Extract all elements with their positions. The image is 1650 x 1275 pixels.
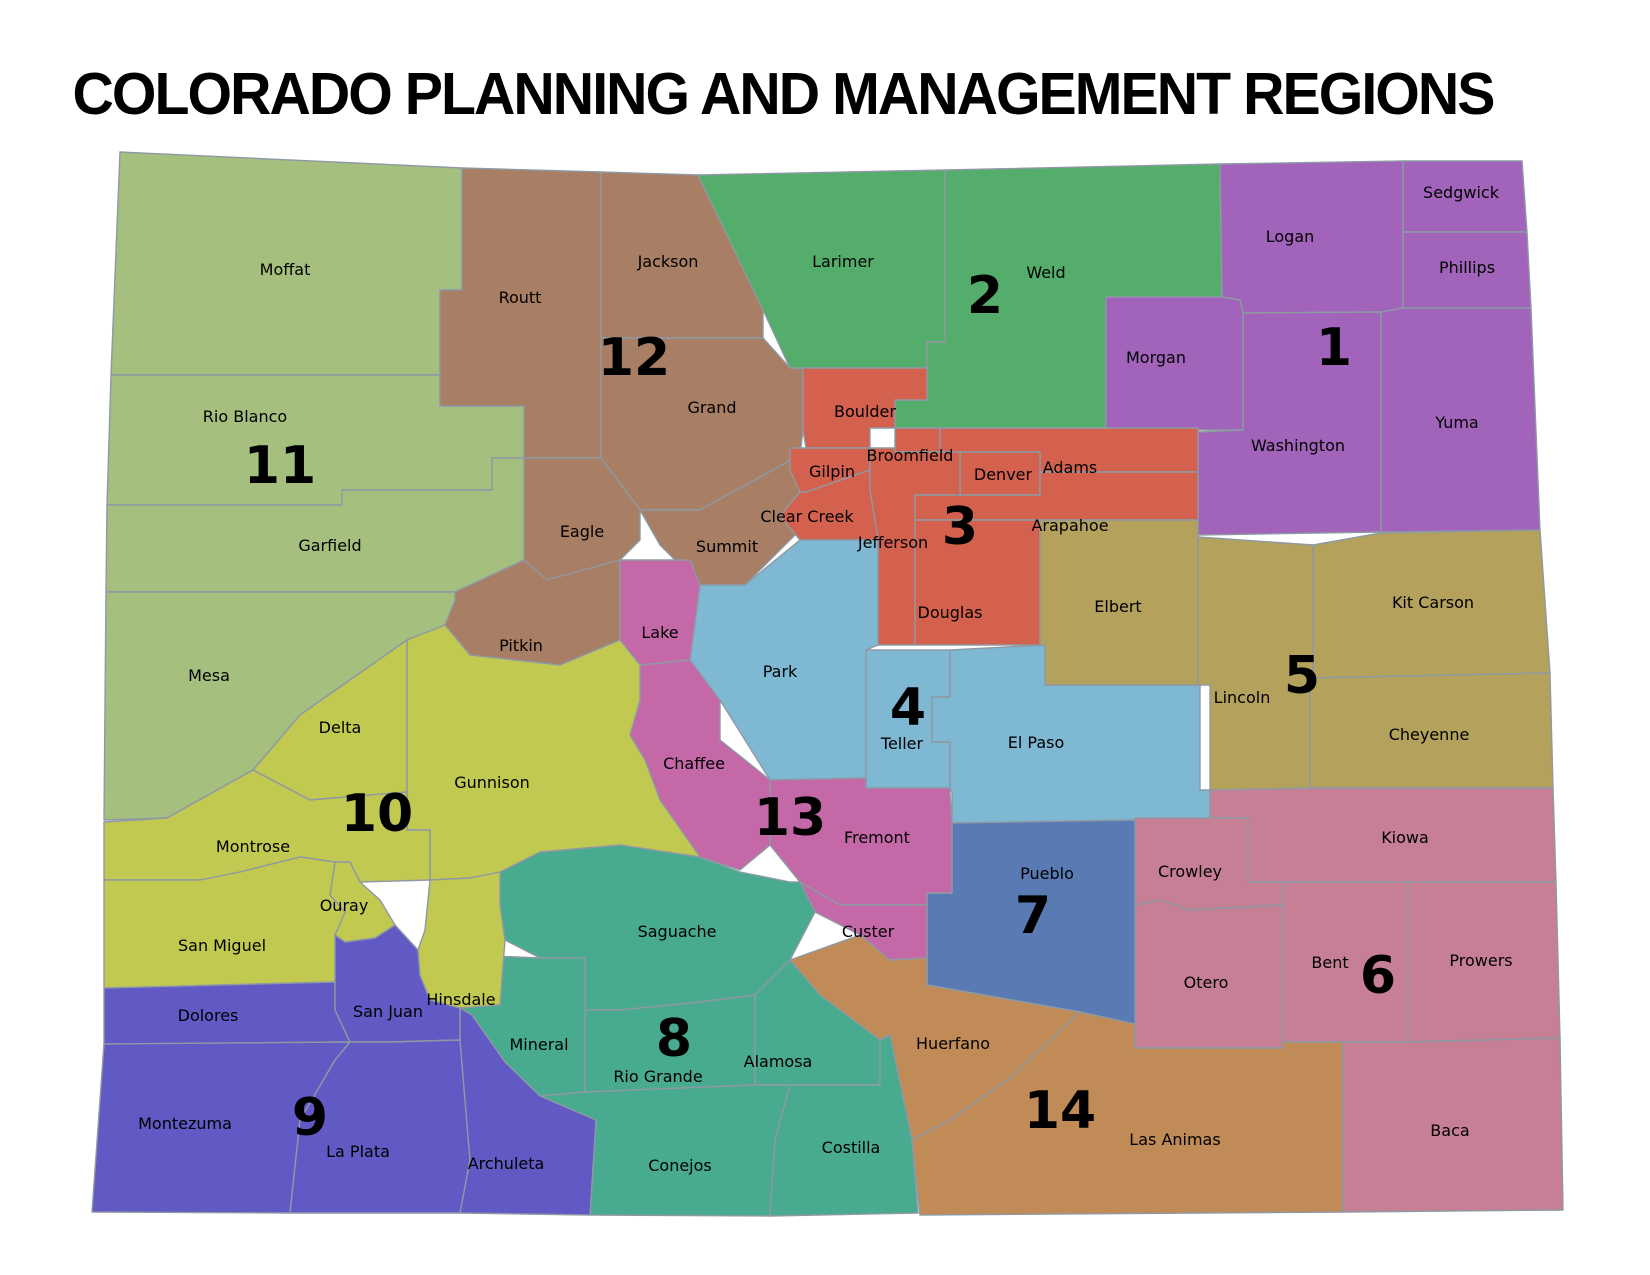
region-number-3: 3 bbox=[942, 497, 978, 557]
county-label-delta: Delta bbox=[319, 718, 362, 737]
county-label-prowers: Prowers bbox=[1449, 951, 1512, 970]
county-lake bbox=[620, 560, 700, 665]
county-label-logan: Logan bbox=[1266, 227, 1315, 246]
county-label-weld: Weld bbox=[1026, 263, 1065, 282]
county-label-broomfield: Broomfield bbox=[867, 446, 954, 465]
county-label-custer: Custer bbox=[842, 922, 895, 941]
county-label-la-plata: La Plata bbox=[326, 1142, 390, 1161]
county-label-mesa: Mesa bbox=[188, 666, 230, 685]
region-number-10: 10 bbox=[341, 784, 413, 844]
county-label-fremont: Fremont bbox=[844, 828, 910, 847]
county-label-crowley: Crowley bbox=[1158, 862, 1222, 881]
region-number-12: 12 bbox=[598, 328, 670, 388]
page-title: COLORADO PLANNING AND MANAGEMENT REGIONS bbox=[23, 60, 1542, 128]
region-number-11: 11 bbox=[244, 436, 316, 496]
county-label-mineral: Mineral bbox=[509, 1035, 568, 1054]
county-label-rio-blanco: Rio Blanco bbox=[203, 407, 287, 426]
county-label-routt: Routt bbox=[499, 288, 542, 307]
county-label-kit-carson: Kit Carson bbox=[1392, 593, 1474, 612]
county-label-archuleta: Archuleta bbox=[468, 1154, 545, 1173]
region-number-6: 6 bbox=[1360, 946, 1396, 1006]
county-label-clear-creek: Clear Creek bbox=[760, 507, 854, 526]
region-number-14: 14 bbox=[1024, 1081, 1096, 1141]
colorado-regions-map: MoffatRio BlancoGarfieldMesaRouttJackson… bbox=[0, 0, 1650, 1275]
county-label-otero: Otero bbox=[1184, 973, 1229, 992]
county-label-el-paso: El Paso bbox=[1008, 733, 1065, 752]
county-label-yuma: Yuma bbox=[1434, 413, 1478, 432]
county-label-conejos: Conejos bbox=[648, 1156, 712, 1175]
county-label-jefferson: Jefferson bbox=[857, 533, 928, 552]
county-label-lake: Lake bbox=[641, 623, 678, 642]
county-label-baca: Baca bbox=[1430, 1121, 1469, 1140]
region-number-8: 8 bbox=[656, 1009, 692, 1069]
county-label-elbert: Elbert bbox=[1094, 597, 1141, 616]
county-label-boulder: Boulder bbox=[834, 402, 896, 421]
county-label-bent: Bent bbox=[1311, 953, 1348, 972]
region-number-9: 9 bbox=[292, 1088, 328, 1148]
county-label-pueblo: Pueblo bbox=[1020, 864, 1074, 883]
county-shapes-layer bbox=[92, 152, 1563, 1216]
county-label-morgan: Morgan bbox=[1126, 348, 1186, 367]
county-label-sedgwick: Sedgwick bbox=[1423, 183, 1500, 202]
county-label-gunnison: Gunnison bbox=[454, 773, 530, 792]
county-label-san-miguel: San Miguel bbox=[178, 936, 266, 955]
county-label-huerfano: Huerfano bbox=[916, 1034, 990, 1053]
region-number-5: 5 bbox=[1284, 646, 1320, 706]
county-label-costilla: Costilla bbox=[822, 1138, 881, 1157]
county-label-gilpin: Gilpin bbox=[809, 462, 855, 481]
county-label-denver: Denver bbox=[974, 465, 1033, 484]
county-label-dolores: Dolores bbox=[178, 1006, 239, 1025]
county-label-hinsdale: Hinsdale bbox=[426, 990, 495, 1009]
region-number-4: 4 bbox=[890, 678, 926, 738]
county-label-montrose: Montrose bbox=[216, 837, 290, 856]
county-label-washington: Washington bbox=[1251, 436, 1345, 455]
county-label-cheyenne: Cheyenne bbox=[1389, 725, 1470, 744]
county-label-jackson: Jackson bbox=[637, 252, 699, 271]
region-number-2: 2 bbox=[967, 266, 1003, 326]
county-label-chaffee: Chaffee bbox=[663, 754, 725, 773]
county-label-adams: Adams bbox=[1043, 458, 1098, 477]
county-label-park: Park bbox=[763, 662, 798, 681]
county-label-douglas: Douglas bbox=[918, 603, 983, 622]
county-label-san-juan: San Juan bbox=[353, 1002, 423, 1021]
region-number-7: 7 bbox=[1015, 886, 1051, 946]
county-label-eagle: Eagle bbox=[560, 522, 604, 541]
county-label-saguache: Saguache bbox=[638, 922, 717, 941]
region-number-13: 13 bbox=[754, 788, 826, 848]
county-label-garfield: Garfield bbox=[298, 536, 361, 555]
county-label-kiowa: Kiowa bbox=[1381, 828, 1429, 847]
county-label-phillips: Phillips bbox=[1439, 258, 1495, 277]
county-label-ouray: Ouray bbox=[320, 896, 369, 915]
county-label-lincoln: Lincoln bbox=[1214, 688, 1271, 707]
county-label-summit: Summit bbox=[696, 537, 758, 556]
county-label-grand: Grand bbox=[687, 398, 736, 417]
county-hinsdale bbox=[418, 872, 505, 1008]
county-label-rio-grande: Rio Grande bbox=[613, 1067, 702, 1086]
county-label-pitkin: Pitkin bbox=[499, 636, 543, 655]
county-label-moffat: Moffat bbox=[260, 260, 311, 279]
county-label-montezuma: Montezuma bbox=[138, 1114, 232, 1133]
county-label-alamosa: Alamosa bbox=[744, 1052, 813, 1071]
county-label-las-animas: Las Animas bbox=[1129, 1130, 1220, 1149]
county-label-larimer: Larimer bbox=[812, 252, 874, 271]
county-label-arapahoe: Arapahoe bbox=[1031, 516, 1108, 535]
region-number-1: 1 bbox=[1316, 318, 1352, 378]
